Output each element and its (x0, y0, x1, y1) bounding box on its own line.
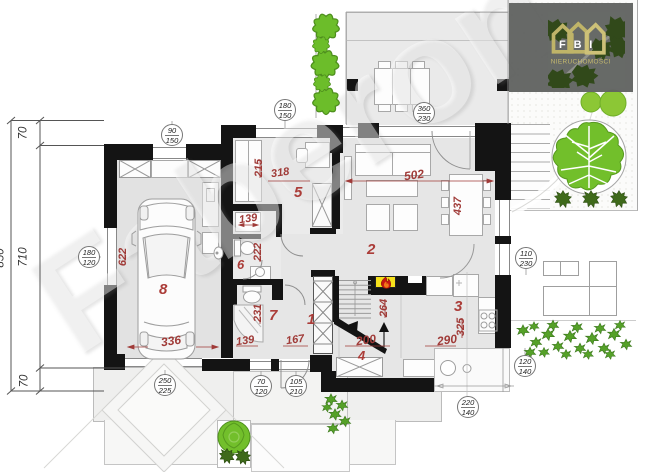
svg-text:B: B (574, 39, 582, 51)
svg-text:NIERUCHOMOŚCI: NIERUCHOMOŚCI (551, 57, 611, 66)
svg-text:I: I (589, 39, 592, 51)
svg-text:F: F (559, 39, 566, 51)
